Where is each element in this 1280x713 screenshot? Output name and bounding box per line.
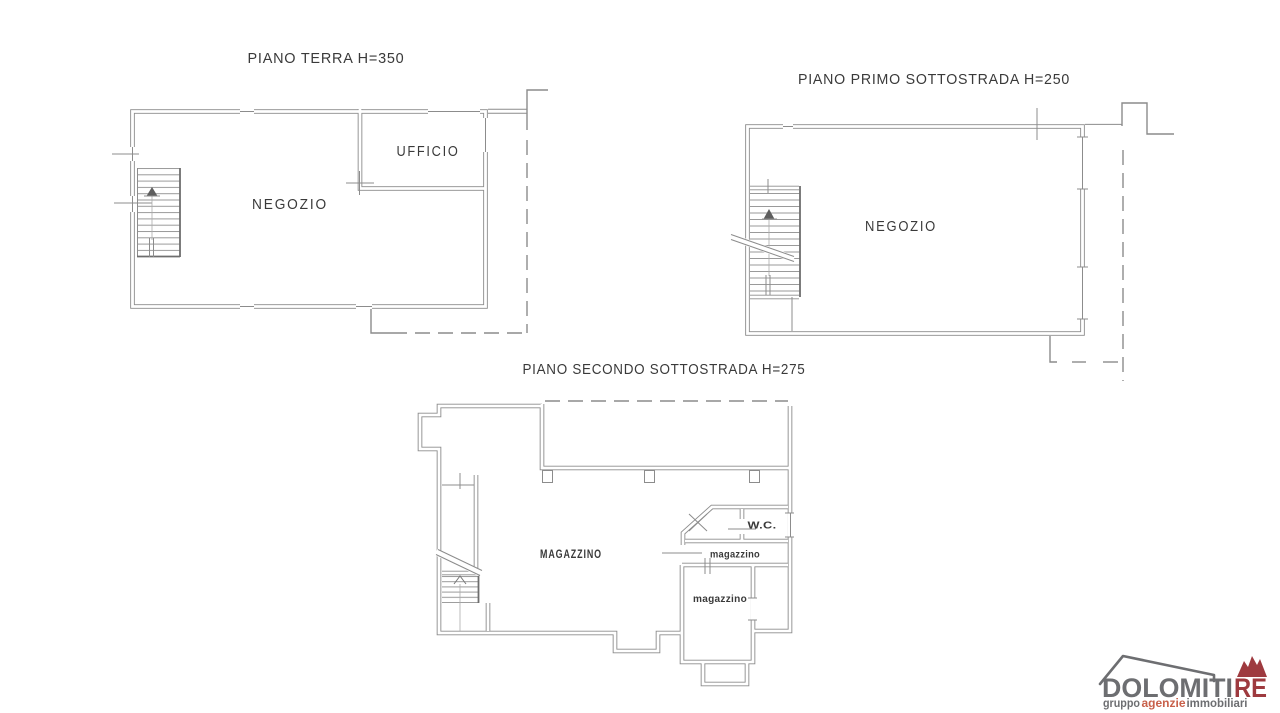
plan-piano-terra: [112, 90, 548, 333]
staircase-icon: [731, 186, 800, 331]
room-label-wc: W.C.: [748, 520, 777, 532]
room-label-magazzino-mid: magazzino: [710, 549, 760, 561]
wall-tick-marks: [768, 108, 1037, 193]
plan-title-piano-secondo: PIANO SECONDO SOTTOSTRADA H=275: [523, 361, 806, 378]
room-label-magazzino-low: magazzino: [693, 593, 747, 605]
floorplan-sheet: PIANO TERRA H=350 PIANO PRIMO SOTTOSTRAD…: [0, 0, 1280, 713]
pillar-symbols: [543, 471, 760, 483]
plan-title-piano-primo: PIANO PRIMO SOTTOSTRADA H=250: [798, 71, 1070, 88]
boundary-lines: [1050, 103, 1174, 381]
logo-tagline-gruppo: gruppo: [1103, 698, 1140, 710]
floorplan-drawing: PIANO TERRA H=350 PIANO PRIMO SOTTOSTRAD…: [0, 0, 1280, 713]
agency-logo: DOLOMITI RE gruppo agenzie immobiliari: [1100, 656, 1267, 710]
logo-tagline-immobiliari: immobiliari: [1187, 698, 1248, 710]
room-label-negozio-terra: NEGOZIO: [252, 196, 328, 213]
boundary-lines: [371, 90, 548, 333]
plan-piano-primo-sottostrada: [731, 103, 1174, 381]
plan-title-piano-terra: PIANO TERRA H=350: [248, 50, 405, 67]
staircase-icon: [137, 168, 180, 257]
logo-tagline-agenzie: agenzie: [1142, 698, 1186, 710]
room-label-magazzino-main: MAGAZZINO: [540, 547, 602, 561]
room-label-ufficio: UFFICIO: [397, 143, 460, 160]
door-symbol-ufficio: [346, 171, 374, 195]
room-label-negozio-primo: NEGOZIO: [865, 218, 937, 235]
